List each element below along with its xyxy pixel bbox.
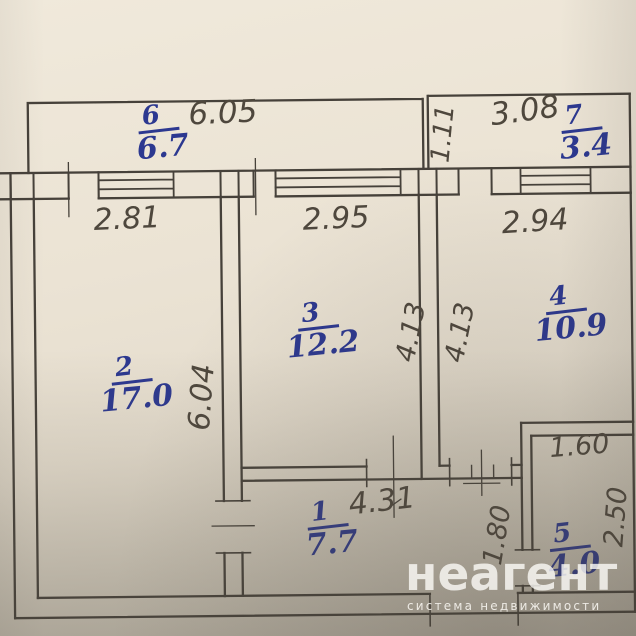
- room-3-area: 12.2: [285, 327, 361, 364]
- room-3-label: 3 12.2: [280, 297, 357, 362]
- dim-room5-depth: 2.50: [598, 486, 634, 548]
- floor-plan-photo: 6.05 3.08 1.11 2.81 2.95 2.94 4.13 4.13 …: [0, 0, 636, 636]
- dim-room5-width: 1.60: [548, 428, 610, 464]
- room-6-label: 6 6.7: [130, 101, 186, 165]
- room-1-area: 7.7: [305, 527, 360, 562]
- plan-rotation-wrapper: 6.05 3.08 1.11 2.81 2.95 2.94 4.13 4.13 …: [0, 0, 636, 636]
- room-4-area: 10.9: [533, 310, 609, 347]
- exterior-wall-band: [0, 167, 631, 200]
- dim-room4-width: 2.94: [501, 202, 570, 241]
- room-5-label: 5 4.0: [541, 518, 597, 582]
- room-7-label: 7 3.4: [553, 100, 609, 164]
- room-7-area: 3.4: [559, 130, 614, 165]
- room-5-area: 4.0: [547, 548, 602, 583]
- room-1-label: 1 7.7: [299, 497, 355, 561]
- dim-balcony6-width: 6.05: [188, 93, 259, 132]
- dim-room2-depth: 6.04: [182, 363, 222, 432]
- room-4-label: 4 10.9: [528, 281, 605, 346]
- room-2-label: 2 17.0: [93, 351, 170, 416]
- dim-room3-width: 2.95: [302, 200, 370, 238]
- dim-balcony7-depth: 1.11: [425, 103, 460, 163]
- dim-room2-width: 2.81: [93, 200, 161, 238]
- room-6-area: 6.7: [136, 130, 191, 165]
- room-2-area: 17.0: [99, 381, 175, 418]
